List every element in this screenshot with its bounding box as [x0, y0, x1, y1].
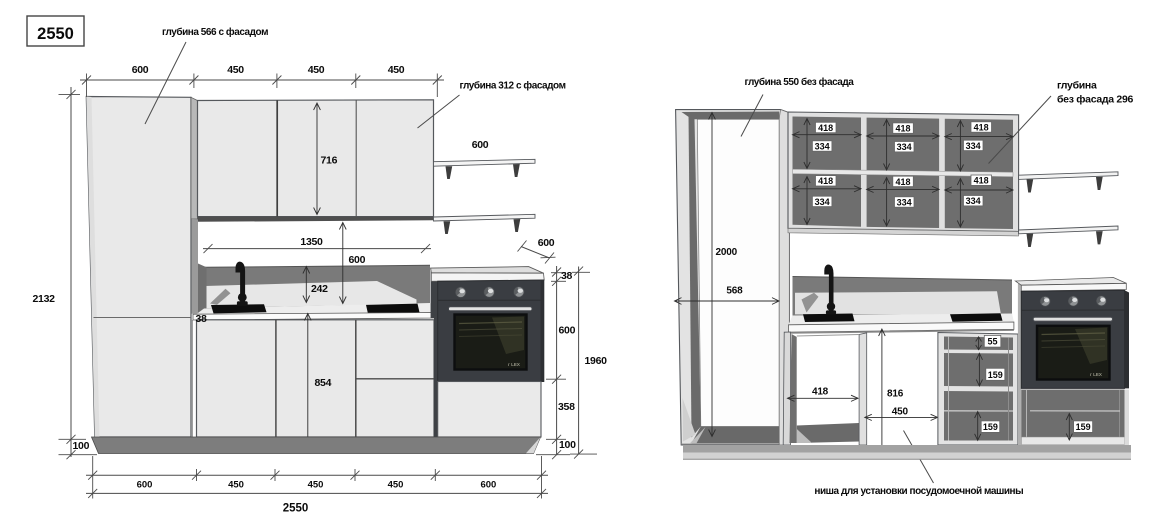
- svg-text:418: 418: [895, 177, 910, 187]
- svg-text:334: 334: [966, 141, 981, 151]
- svg-text:2550: 2550: [283, 503, 309, 515]
- svg-text:450: 450: [228, 480, 244, 491]
- svg-text:38: 38: [196, 313, 208, 325]
- svg-text:600: 600: [559, 325, 576, 337]
- svg-text:568: 568: [726, 286, 743, 297]
- svg-text:159: 159: [1076, 422, 1091, 432]
- svg-text:55: 55: [987, 337, 997, 347]
- svg-text:глубина 566 с фасадом: глубина 566 с фасадом: [162, 26, 268, 38]
- svg-text:334: 334: [897, 142, 912, 152]
- svg-text:600: 600: [132, 64, 149, 76]
- svg-text:358: 358: [558, 401, 575, 413]
- svg-text:334: 334: [897, 197, 912, 207]
- svg-text:600: 600: [137, 480, 153, 491]
- svg-text:716: 716: [321, 155, 338, 167]
- svg-text:450: 450: [388, 480, 404, 491]
- svg-text:без фасада 296: без фасада 296: [1057, 94, 1133, 106]
- svg-text:334: 334: [966, 196, 981, 206]
- svg-text:450: 450: [227, 64, 244, 76]
- svg-text:2132: 2132: [33, 293, 56, 305]
- svg-text:418: 418: [974, 122, 989, 132]
- svg-text:г LEX: г LEX: [1090, 372, 1102, 377]
- svg-text:418: 418: [895, 124, 910, 134]
- svg-text:ниша для установки посудомоечн: ниша для установки посудомоечной машины: [814, 486, 1023, 497]
- svg-text:816: 816: [887, 389, 904, 400]
- svg-text:600: 600: [472, 139, 489, 151]
- svg-text:450: 450: [308, 480, 324, 491]
- svg-text:глубина: глубина: [1057, 80, 1097, 92]
- svg-text:450: 450: [388, 64, 405, 76]
- svg-text:450: 450: [892, 407, 909, 418]
- svg-text:1350: 1350: [300, 236, 323, 248]
- svg-text:1960: 1960: [585, 355, 608, 367]
- svg-text:глубина 312 с фасадом: глубина 312 с фасадом: [460, 80, 566, 92]
- svg-text:159: 159: [988, 370, 1003, 380]
- svg-text:600: 600: [538, 237, 555, 249]
- svg-text:глубина 550 без фасада: глубина 550 без фасада: [745, 76, 855, 88]
- svg-text:600: 600: [480, 480, 496, 491]
- svg-text:418: 418: [818, 176, 833, 186]
- svg-text:854: 854: [315, 377, 332, 389]
- svg-text:334: 334: [815, 197, 830, 207]
- svg-text:242: 242: [311, 283, 328, 295]
- svg-text:418: 418: [818, 123, 833, 133]
- svg-text:2550: 2550: [37, 25, 74, 43]
- svg-text:100: 100: [73, 440, 90, 452]
- svg-text:600: 600: [349, 254, 366, 266]
- svg-text:418: 418: [812, 386, 829, 397]
- svg-text:38: 38: [561, 270, 573, 282]
- svg-text:100: 100: [559, 439, 576, 451]
- svg-text:334: 334: [815, 141, 830, 151]
- svg-text:418: 418: [974, 176, 989, 186]
- svg-text:159: 159: [983, 422, 998, 432]
- svg-text:450: 450: [308, 64, 325, 76]
- svg-text:2000: 2000: [716, 247, 738, 258]
- svg-text:г LEX: г LEX: [508, 362, 520, 367]
